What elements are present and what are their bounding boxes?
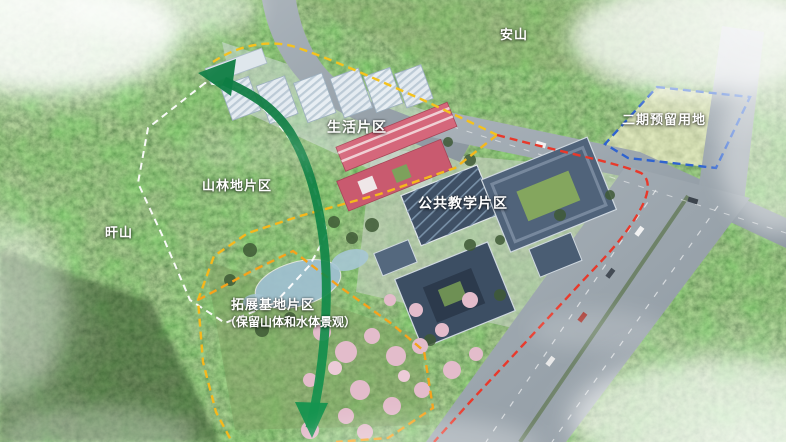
zone-label-phase2-reserved: 二期预留用地 [622, 114, 706, 129]
zone-label-expansion-note: （保留山体和水体景观） [224, 316, 356, 330]
zone-label-living: 生活片区 [327, 120, 387, 136]
zone-label-public-teaching: 公共教学片区 [418, 196, 508, 212]
zone-label-mountain-forest: 山林地片区 [202, 180, 272, 195]
aerial-scene [0, 0, 786, 442]
mountain-label-anshan: 安山 [500, 29, 528, 44]
zone-label-expansion-base: 拓展基地片区 [231, 299, 315, 314]
site-plan-rendering: 安山 旰山 二期预留用地 生活片区 山林地片区 公共教学片区 拓展基地片区 （保… [0, 0, 786, 442]
mountain-label-ganshan: 旰山 [105, 227, 133, 242]
